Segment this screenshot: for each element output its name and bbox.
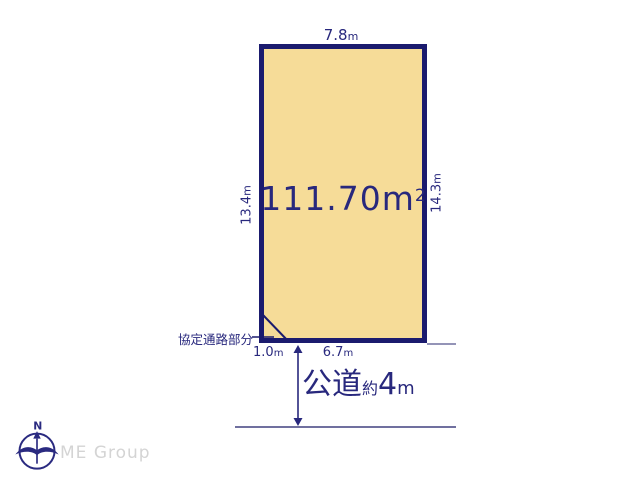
road-width-arrowhead-down [294,418,303,426]
area-value: 111.70 [260,179,381,218]
road-name: 公道 [302,367,362,402]
plot-area-label: 111.70m2 [259,179,427,218]
road-width-unit: m [397,378,415,399]
dimension-right: 14.3m [430,173,445,213]
dimension-top: 7.8m [321,26,361,44]
road-approx: 約 [362,379,378,398]
dimension-corner-passage: 1.0m [253,345,283,360]
road-width-arrowhead-up [294,345,303,353]
footer-logo: N ME Group [12,419,162,475]
area-unit: m [382,179,415,218]
road-width-value: 4 [378,367,397,402]
land-plot-diagram: { "diagram": { "plot": { "area": { "valu… [0,0,640,480]
svg-text:N: N [33,420,42,433]
agreement-passage-note: 協定通路部分 [168,329,253,348]
road-label: 公道約4m [302,368,415,406]
dimension-left: 13.4m [240,185,255,225]
logo-text: ME Group [60,443,151,463]
area-unit-exponent: 2 [415,186,426,206]
compass-icon: N [12,419,62,475]
dimension-bottom: 6.7m [317,345,359,360]
